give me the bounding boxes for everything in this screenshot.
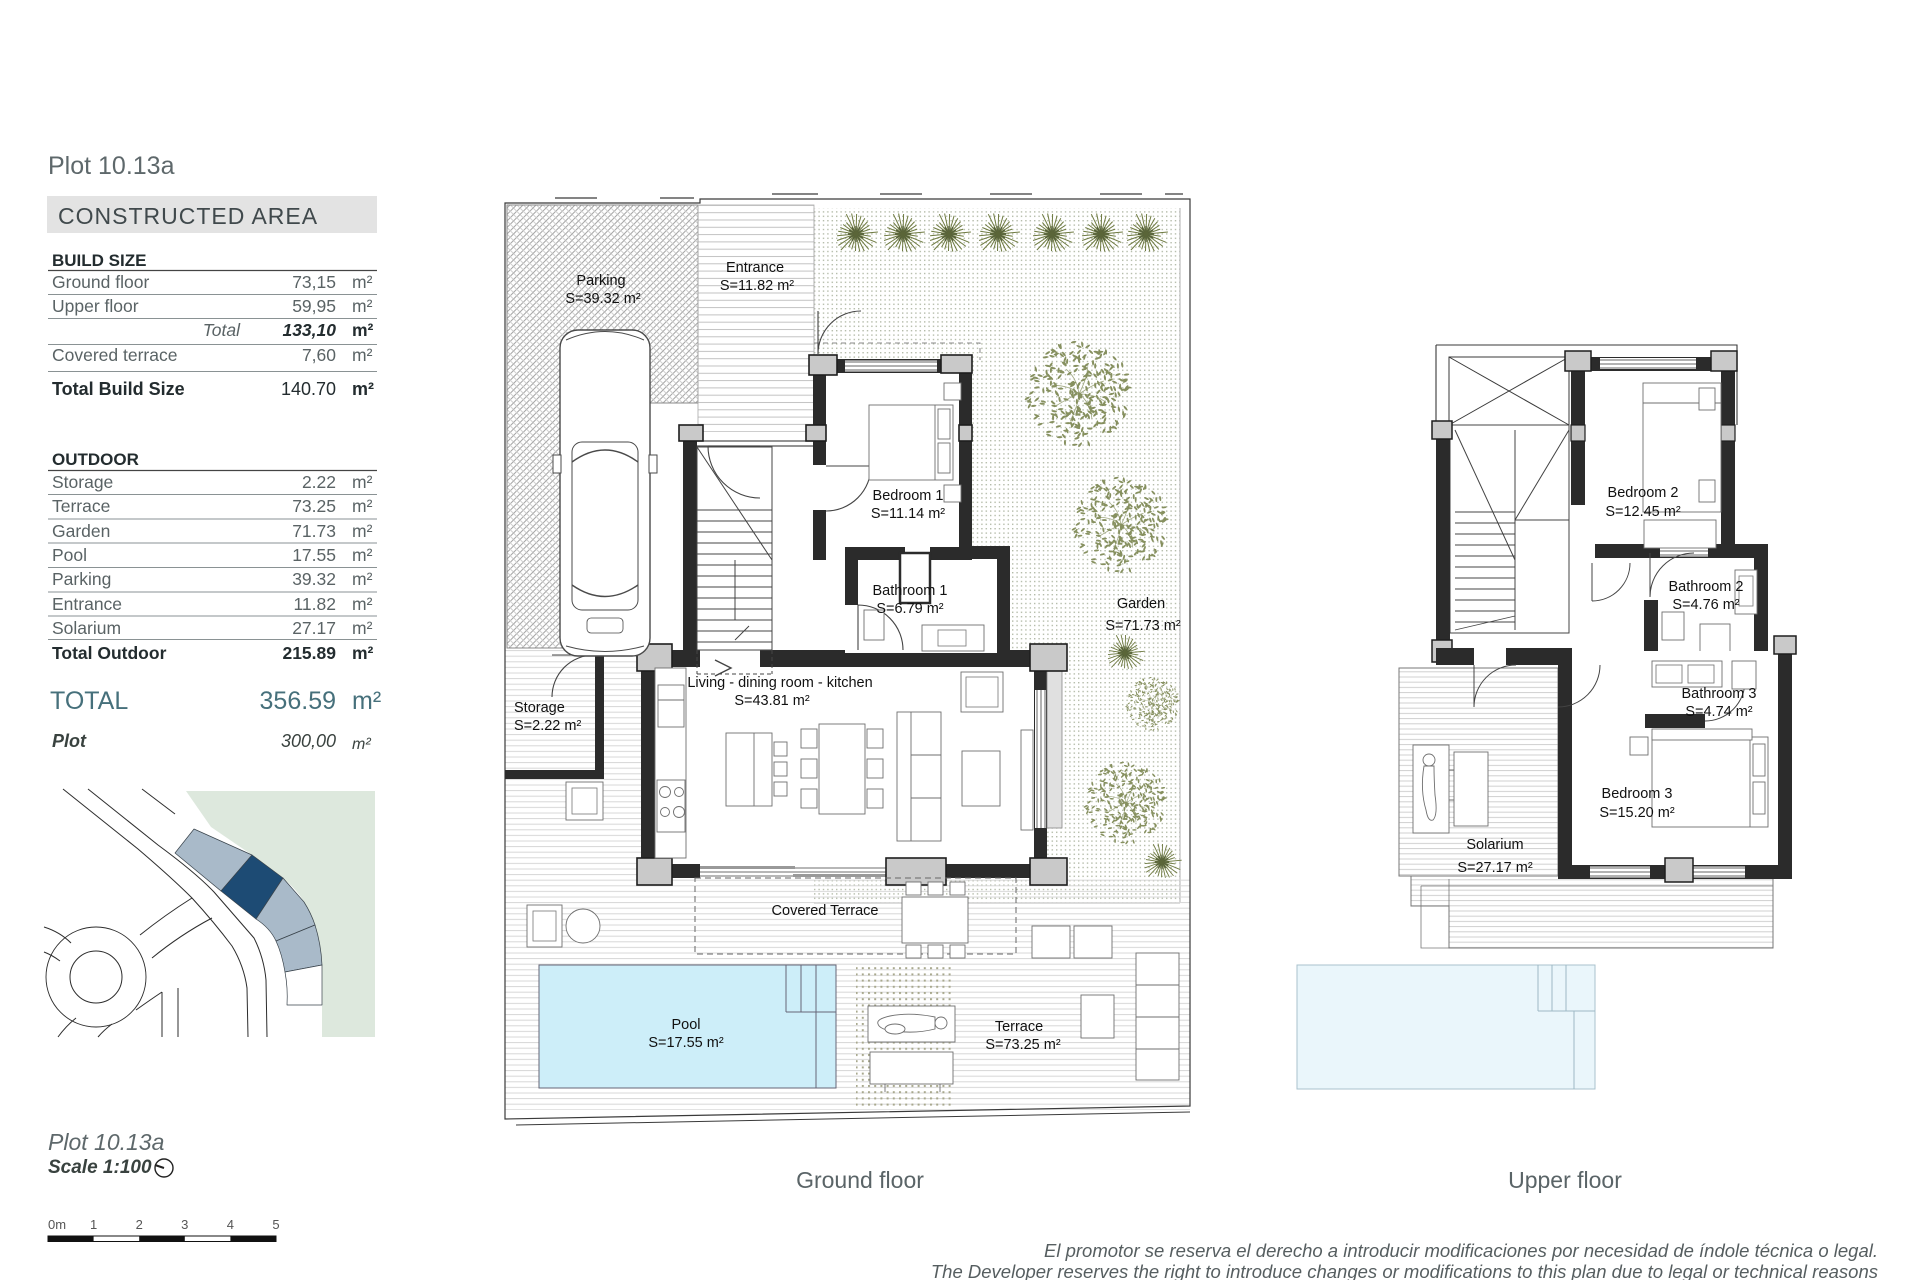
svg-text:7,60: 7,60 — [302, 345, 336, 365]
svg-text:Bathroom 1: Bathroom 1 — [873, 583, 948, 599]
svg-text:m²: m² — [352, 594, 373, 614]
svg-text:3: 3 — [181, 1217, 188, 1232]
svg-text:Total Outdoor: Total Outdoor — [52, 643, 167, 663]
svg-text:S=43.81 m²: S=43.81 m² — [734, 693, 810, 709]
svg-text:m²: m² — [352, 618, 373, 638]
svg-text:2.22: 2.22 — [302, 472, 336, 492]
svg-text:m²: m² — [352, 472, 373, 492]
svg-text:356.59: 356.59 — [260, 687, 336, 715]
svg-text:Storage: Storage — [52, 472, 113, 492]
svg-text:Covered terrace: Covered terrace — [52, 345, 177, 365]
svg-text:73.25: 73.25 — [292, 496, 336, 516]
svg-text:Pool: Pool — [52, 545, 87, 565]
svg-text:Terrace: Terrace — [52, 496, 110, 516]
svg-text:Pool: Pool — [671, 1017, 700, 1033]
svg-text:Bathroom 3: Bathroom 3 — [1682, 686, 1757, 702]
svg-text:Garden: Garden — [52, 521, 110, 541]
svg-text:The Developer reserves the rig: The Developer reserves the right to intr… — [931, 1261, 1878, 1280]
svg-text:2: 2 — [136, 1217, 143, 1232]
svg-text:Ground floor: Ground floor — [52, 272, 149, 292]
svg-text:S=39.32 m²: S=39.32 m² — [565, 291, 641, 307]
svg-text:S=4.74 m²: S=4.74 m² — [1685, 704, 1752, 720]
svg-text:m²: m² — [352, 296, 373, 316]
svg-text:m²: m² — [352, 643, 374, 663]
svg-text:S=2.22 m²: S=2.22 m² — [514, 718, 581, 734]
svg-text:S=27.17 m²: S=27.17 m² — [1457, 860, 1533, 876]
svg-text:OUTDOOR: OUTDOOR — [52, 450, 139, 469]
svg-text:71.73: 71.73 — [292, 521, 336, 541]
svg-text:Plot 10.13a: Plot 10.13a — [48, 1129, 164, 1155]
svg-text:59,95: 59,95 — [292, 296, 336, 316]
svg-text:Bedroom 1: Bedroom 1 — [873, 488, 944, 504]
svg-text:Bathroom 2: Bathroom 2 — [1669, 579, 1744, 595]
svg-text:Covered Terrace: Covered Terrace — [772, 903, 879, 919]
svg-text:BUILD SIZE: BUILD SIZE — [52, 251, 146, 270]
svg-text:Solarium: Solarium — [52, 618, 121, 638]
svg-text:Solarium: Solarium — [1466, 837, 1523, 853]
svg-text:m²: m² — [352, 736, 371, 753]
svg-text:m²: m² — [352, 687, 381, 715]
svg-text:Plot 10.13a: Plot 10.13a — [48, 152, 175, 180]
svg-text:39.32: 39.32 — [292, 569, 336, 589]
svg-text:m²: m² — [352, 379, 374, 399]
svg-text:Entrance: Entrance — [726, 260, 784, 276]
svg-text:S=71.73 m²: S=71.73 m² — [1105, 618, 1181, 634]
svg-text:CONSTRUCTED AREA: CONSTRUCTED AREA — [58, 203, 318, 229]
svg-text:Total Build Size: Total Build Size — [52, 379, 185, 399]
svg-text:S=73.25 m²: S=73.25 m² — [985, 1037, 1061, 1053]
svg-text:Parking: Parking — [576, 273, 625, 289]
svg-text:1: 1 — [90, 1217, 97, 1232]
svg-text:S=11.14 m²: S=11.14 m² — [871, 506, 945, 522]
svg-text:140.70: 140.70 — [281, 379, 336, 399]
svg-text:S=17.55 m²: S=17.55 m² — [648, 1035, 724, 1051]
svg-text:S=11.82 m²: S=11.82 m² — [720, 278, 794, 294]
svg-text:m²: m² — [352, 272, 373, 292]
svg-text:0m: 0m — [48, 1217, 66, 1232]
svg-text:Garden: Garden — [1117, 596, 1165, 612]
svg-text:4: 4 — [227, 1217, 234, 1232]
svg-text:Scale 1:100: Scale 1:100 — [48, 1157, 152, 1178]
svg-text:TOTAL: TOTAL — [50, 687, 128, 715]
svg-text:215.89: 215.89 — [282, 643, 336, 663]
svg-text:m²: m² — [352, 496, 373, 516]
svg-text:300,00: 300,00 — [281, 731, 336, 751]
svg-text:S=12.45 m²: S=12.45 m² — [1605, 504, 1681, 520]
svg-text:5: 5 — [272, 1217, 279, 1232]
svg-text:Total: Total — [203, 320, 241, 340]
svg-text:27.17: 27.17 — [292, 618, 336, 638]
svg-text:Living - dining room - kitche: Living - dining room - kitchen — [687, 675, 872, 691]
svg-text:m²: m² — [352, 345, 373, 365]
svg-text:S=4.76 m²: S=4.76 m² — [1672, 597, 1739, 613]
svg-text:S=15.20 m²: S=15.20 m² — [1599, 805, 1675, 821]
svg-text:Upper floor: Upper floor — [52, 296, 139, 316]
svg-text:El promotor se reserva el dere: El promotor se reserva el derecho a intr… — [1044, 1240, 1878, 1261]
svg-text:73,15: 73,15 — [292, 272, 336, 292]
svg-text:m²: m² — [352, 521, 373, 541]
svg-text:m²: m² — [352, 320, 374, 340]
svg-text:Upper floor: Upper floor — [1508, 1167, 1622, 1193]
svg-text:Bedroom 3: Bedroom 3 — [1602, 786, 1673, 802]
svg-text:Storage: Storage — [514, 700, 565, 716]
svg-text:m²: m² — [352, 569, 373, 589]
svg-text:Plot: Plot — [52, 731, 87, 751]
svg-text:Entrance: Entrance — [52, 594, 122, 614]
svg-text:Parking: Parking — [52, 569, 111, 589]
svg-text:17.55: 17.55 — [292, 545, 336, 565]
svg-text:11.82: 11.82 — [294, 594, 337, 614]
svg-text:133,10: 133,10 — [282, 320, 336, 340]
svg-text:m²: m² — [352, 545, 373, 565]
svg-text:Ground floor: Ground floor — [796, 1167, 924, 1193]
svg-text:Terrace: Terrace — [995, 1019, 1043, 1035]
svg-text:S=6.79 m²: S=6.79 m² — [876, 601, 943, 617]
svg-text:Bedroom 2: Bedroom 2 — [1608, 485, 1679, 501]
